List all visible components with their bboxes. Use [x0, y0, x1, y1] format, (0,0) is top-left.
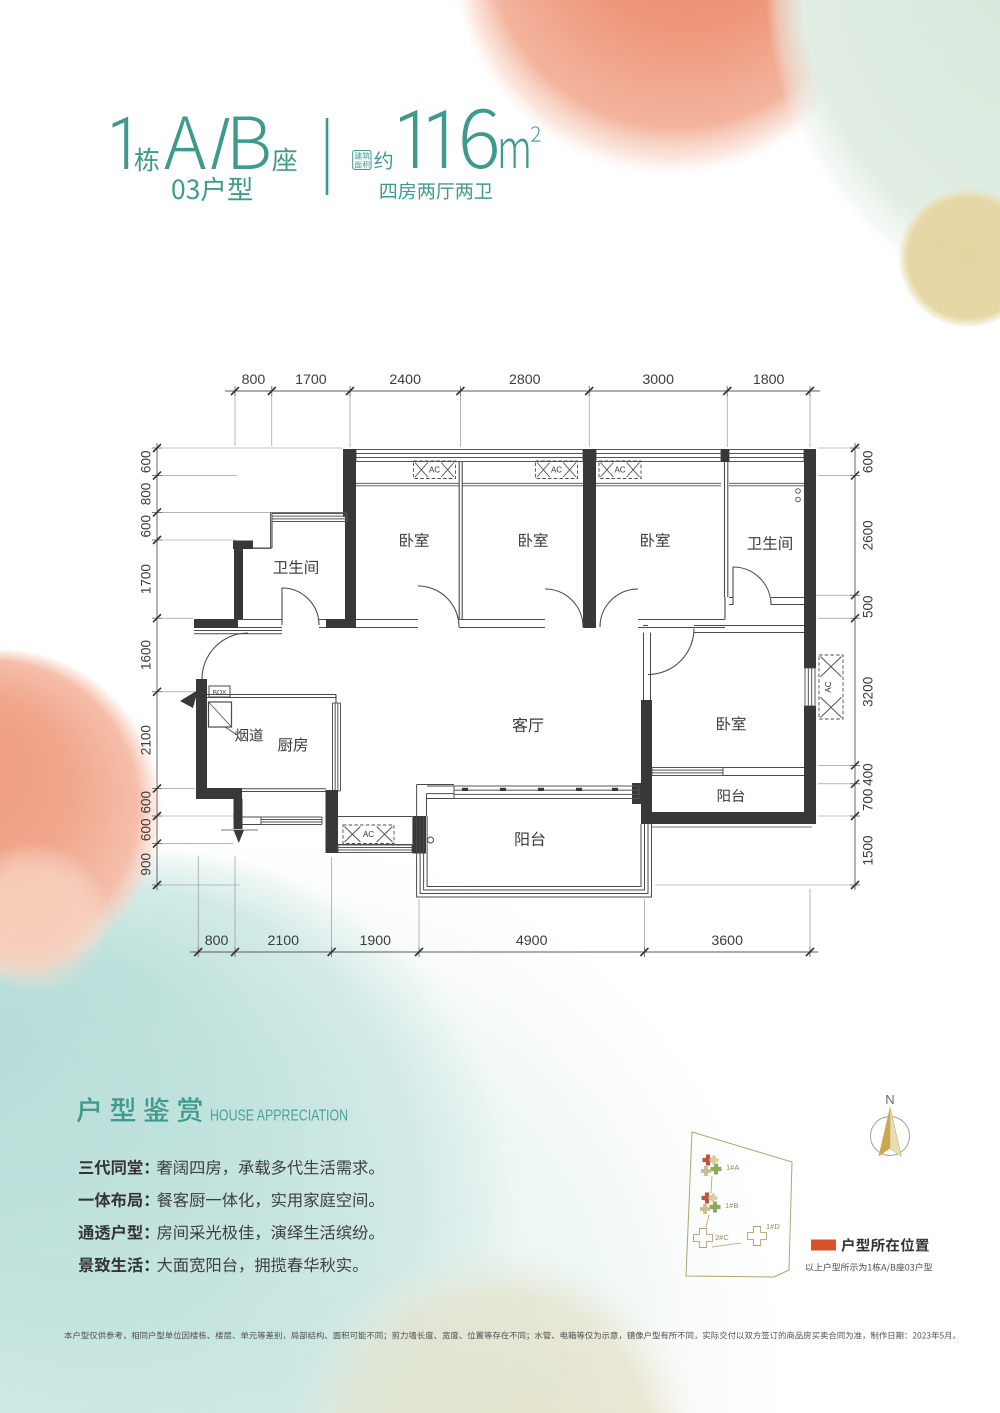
svg-text:1#B: 1#B [725, 1201, 738, 1210]
svg-text:1#A: 1#A [726, 1163, 739, 1172]
svg-text:800: 800 [242, 372, 266, 388]
svg-text:900: 900 [139, 853, 154, 876]
svg-text:2100: 2100 [139, 725, 154, 755]
svg-text:2#C: 2#C [715, 1233, 729, 1242]
svg-text:1#D: 1#D [766, 1222, 780, 1231]
svg-text:1600: 1600 [139, 640, 154, 670]
svg-text:BOX: BOX [213, 690, 227, 697]
svg-text:600: 600 [139, 515, 154, 538]
svg-text:2600: 2600 [861, 520, 876, 550]
svg-text:AC: AC [614, 466, 625, 475]
svg-text:2800: 2800 [509, 372, 541, 388]
svg-text:4900: 4900 [516, 933, 548, 949]
svg-text:AC: AC [824, 681, 833, 692]
svg-text:1700: 1700 [139, 564, 154, 594]
svg-text:3200: 3200 [861, 677, 876, 707]
svg-text:400: 400 [861, 763, 876, 786]
svg-text:2400: 2400 [389, 372, 421, 388]
svg-text:3600: 3600 [711, 933, 743, 949]
svg-text:1800: 1800 [753, 372, 785, 388]
svg-text:N: N [885, 1092, 894, 1107]
svg-text:AC: AC [363, 830, 374, 839]
svg-text:600: 600 [861, 451, 876, 474]
svg-text:2100: 2100 [268, 933, 300, 949]
svg-text:HOUSE APPRECIATION: HOUSE APPRECIATION [210, 1106, 348, 1124]
svg-text:800: 800 [139, 483, 154, 506]
svg-text:600: 600 [139, 451, 154, 474]
svg-text:1700: 1700 [295, 372, 327, 388]
svg-text:800: 800 [205, 933, 229, 949]
svg-text:3000: 3000 [642, 372, 674, 388]
svg-text:500: 500 [861, 595, 876, 618]
svg-text:1500: 1500 [861, 835, 876, 865]
svg-text:600: 600 [139, 791, 154, 814]
svg-text:1900: 1900 [360, 933, 392, 949]
svg-text:600: 600 [139, 819, 154, 842]
svg-text:AC: AC [429, 466, 440, 475]
svg-text:700: 700 [861, 789, 876, 812]
svg-text:AC: AC [551, 466, 562, 475]
